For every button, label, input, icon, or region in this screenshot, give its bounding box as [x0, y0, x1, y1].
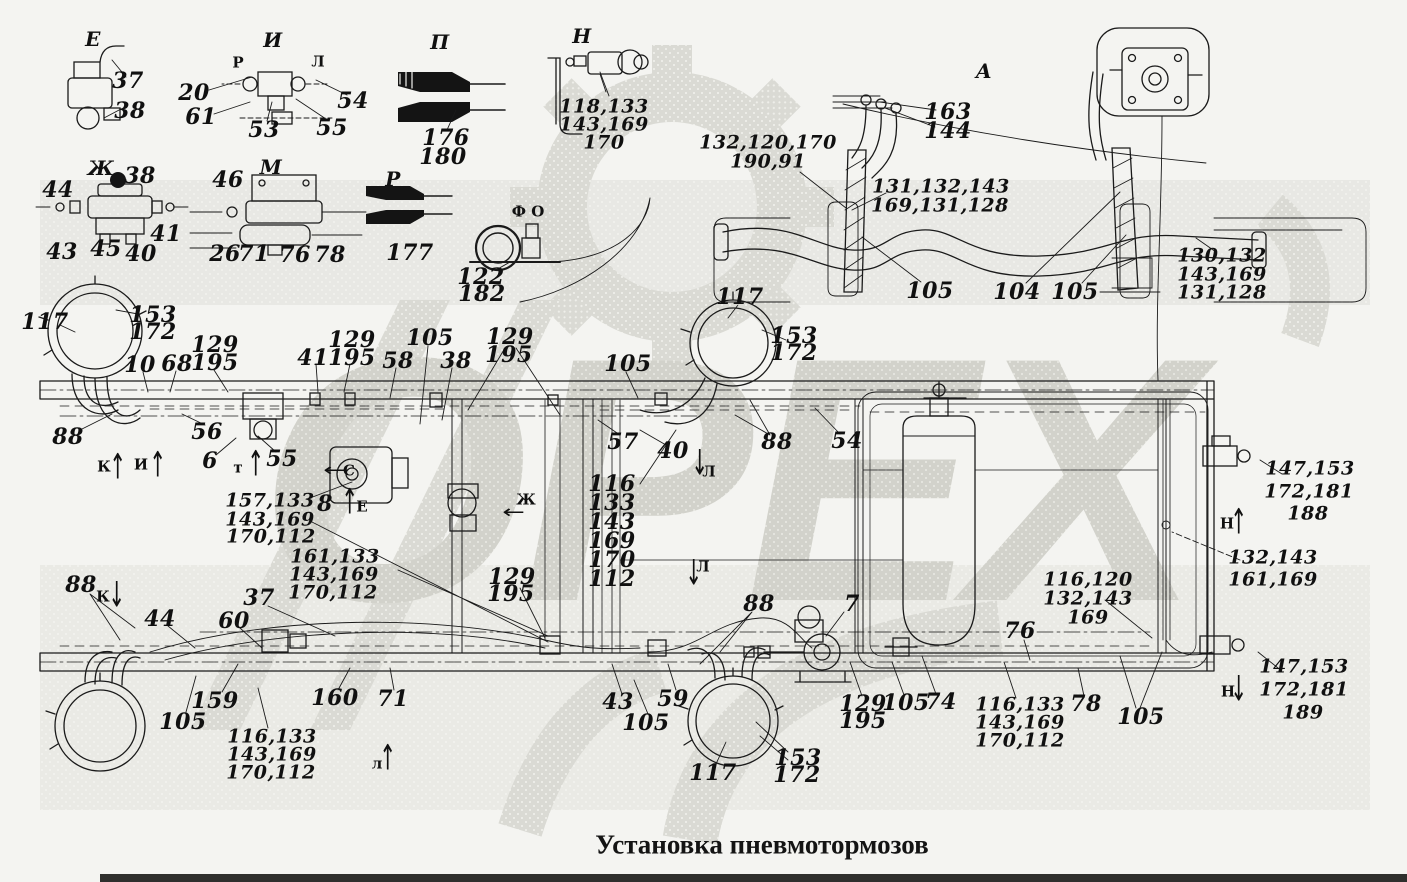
callout-172-181: 172,181 [1264, 483, 1353, 502]
callout-195: 195 [191, 352, 238, 374]
callout-43: 43 [46, 241, 78, 263]
callout-132-143: 132,143 [1228, 549, 1317, 568]
callout-54: 54 [337, 90, 369, 112]
callout-60: 60 [218, 610, 250, 632]
callout-188: 188 [1287, 505, 1328, 524]
diagram-stage: ОРЕХ [0, 0, 1407, 882]
callout-177: 177 [386, 242, 433, 264]
callout-40: 40 [657, 440, 689, 462]
callout-59: 59 [657, 688, 689, 710]
callout-78: 78 [314, 244, 346, 266]
callout-20: 20 [178, 82, 210, 104]
view-arrow-n-down: ↓ [1230, 671, 1247, 706]
callout-161-169: 161,169 [1228, 571, 1317, 590]
callout-58: 58 [382, 350, 414, 372]
drawing-title: Установка пневмотормозов [595, 830, 928, 861]
callout-189: 189 [1282, 704, 1323, 723]
callout-169: 169 [1067, 609, 1108, 628]
callout-195: 195 [487, 583, 534, 605]
callout-88: 88 [761, 431, 793, 453]
callout-71: 71 [238, 243, 270, 265]
callout-56: 56 [191, 421, 223, 443]
port-letter-r: Р [232, 56, 243, 71]
callout-180: 180 [419, 146, 466, 168]
callout-38: 38 [124, 165, 156, 187]
callout-131-128: 131,128 [1177, 284, 1266, 303]
callout-76: 76 [279, 244, 311, 266]
callout-44: 44 [42, 179, 74, 201]
callout-55: 55 [316, 117, 348, 139]
callout-170-112: 170,112 [288, 584, 377, 603]
callout-105: 105 [622, 712, 669, 734]
callout-38: 38 [440, 350, 472, 372]
callout-55: 55 [266, 448, 298, 470]
callout-172: 172 [129, 321, 176, 343]
callout-147-153: 147,153 [1259, 658, 1348, 677]
callout-195: 195 [328, 347, 375, 369]
marker-letter-t: т [233, 461, 242, 476]
view-arrow-e-up: ↑ [341, 484, 358, 519]
view-arrow-l-up: ↑ [379, 740, 396, 775]
callout-117: 117 [716, 286, 763, 308]
callout-6: 6 [202, 450, 218, 472]
view-arrow-k-up: ↑ [109, 449, 126, 484]
view-letter-a: А [976, 61, 993, 81]
callout-10: 10 [124, 354, 156, 376]
callout-117: 117 [21, 311, 68, 333]
view-letters-f-o: Ф О [512, 205, 545, 220]
callout-88: 88 [743, 593, 775, 615]
callout-170-112: 170,112 [975, 732, 1064, 751]
callout-38: 38 [114, 100, 146, 122]
callout-45: 45 [90, 238, 122, 260]
view-arrow-k-down: ↓ [108, 577, 125, 612]
callout-71: 71 [377, 688, 409, 710]
view-arrow-zh-left: ← [502, 504, 525, 522]
callout-105: 105 [882, 692, 929, 714]
callout-105: 105 [406, 327, 453, 349]
callout-68: 68 [161, 353, 193, 375]
callout-170-112: 170,112 [226, 764, 315, 783]
callout-76: 76 [1004, 620, 1036, 642]
callout-46: 46 [212, 169, 244, 191]
callout-88: 88 [65, 574, 97, 596]
callout-104: 104 [993, 281, 1040, 303]
callout-57: 57 [607, 431, 639, 453]
callout-8: 8 [317, 493, 333, 515]
callout-195: 195 [485, 344, 532, 366]
callout-117: 117 [689, 762, 736, 784]
callout-105: 105 [159, 711, 206, 733]
view-letter-zh-top: Ж [88, 158, 115, 178]
callout-41: 41 [150, 223, 182, 245]
callout-105: 105 [1117, 706, 1164, 728]
view-arrow-n-up: ↑ [1230, 504, 1247, 539]
view-letter-i-top: И [263, 30, 282, 50]
port-letter-l: Л [311, 55, 324, 70]
callout-7: 7 [844, 593, 860, 615]
view-letter-m: М [260, 157, 283, 177]
callout-41: 41 [297, 347, 329, 369]
view-letter-r-mid: Р [385, 169, 401, 189]
callout-26: 26 [209, 243, 241, 265]
callout-61: 61 [185, 106, 217, 128]
callout-112: 112 [588, 568, 635, 590]
callout-172-181: 172,181 [1259, 681, 1348, 700]
view-arrow-l-down: ↓ [691, 445, 708, 480]
callout-44: 44 [144, 608, 176, 630]
callout-170: 170 [583, 134, 624, 153]
callout-170-112: 170,112 [226, 528, 315, 547]
callout-74: 74 [925, 691, 957, 713]
callout-172: 172 [770, 342, 817, 364]
callout-105: 105 [604, 353, 651, 375]
callout-37: 37 [243, 587, 275, 609]
callout-144: 144 [924, 120, 971, 142]
callout-53: 53 [248, 119, 280, 141]
callout-54: 54 [831, 430, 863, 452]
callout-78: 78 [1070, 693, 1102, 715]
view-letter-p: П [430, 32, 449, 52]
callout-172: 172 [773, 764, 820, 786]
callout-147-153: 147,153 [1265, 460, 1354, 479]
callout-190-91: 190,91 [730, 153, 806, 172]
callout-182: 182 [458, 283, 505, 305]
label-layer: Е3738ИРЛ2061535554П176180Н118,133143,169… [0, 0, 1407, 882]
view-arrow-i-up: ↑ [149, 447, 166, 482]
callout-88: 88 [52, 426, 84, 448]
callout-37: 37 [112, 70, 144, 92]
callout-195: 195 [839, 710, 886, 732]
callout-105: 105 [906, 280, 953, 302]
view-letter-n-top: Н [572, 26, 591, 46]
callout-105: 105 [1051, 281, 1098, 303]
view-arrow-t-up: ↑ [247, 446, 264, 481]
callout-169-131-128: 169,131,128 [871, 197, 1009, 216]
view-letter-e-top: Е [85, 29, 101, 49]
view-arrow-s-left: ← [323, 462, 346, 480]
view-arrow-l-down2: ↓ [685, 555, 702, 590]
callout-160: 160 [311, 687, 358, 709]
marker-letter-i: И [134, 458, 148, 473]
